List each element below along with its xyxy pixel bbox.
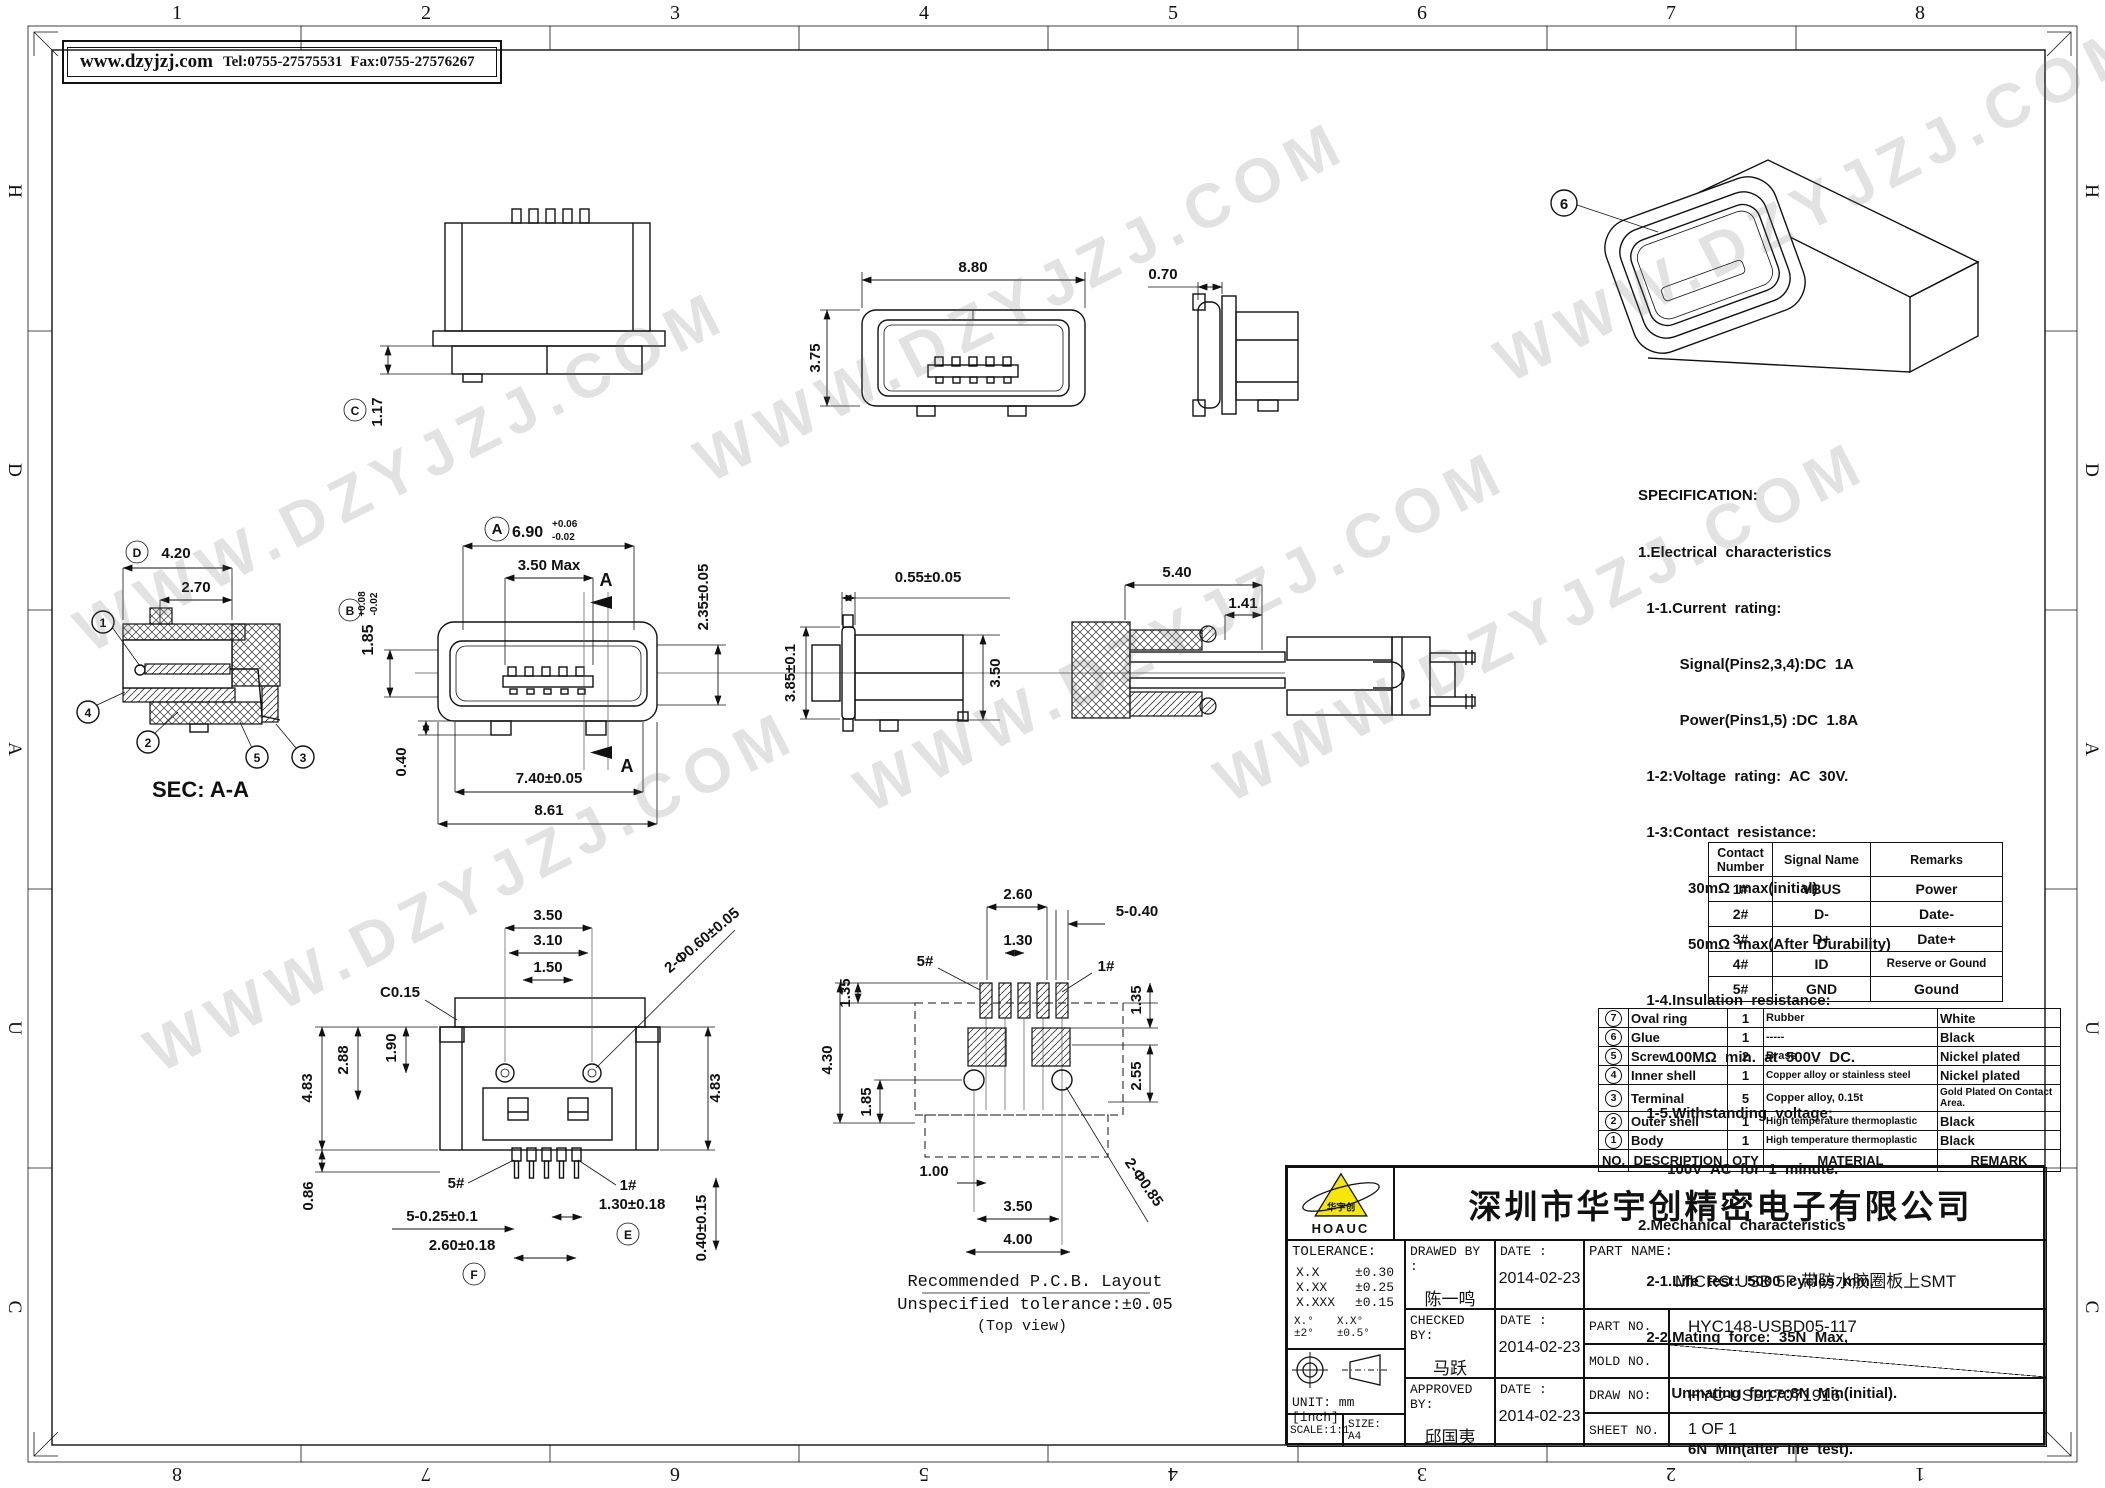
- date2-value: 2014-02-23: [1496, 1339, 1583, 1357]
- dim-0-40-015: 0.40±0.15: [693, 1195, 710, 1262]
- dim-3-50-bot: 3.50: [533, 907, 562, 924]
- zone-row-left-1: H: [3, 179, 25, 203]
- pcb-dim-1-85: 1.85: [858, 1087, 875, 1116]
- zone-col-bottom-3: 3: [1404, 1462, 1440, 1485]
- dim-3-50-max: 3.50 Max: [518, 557, 581, 574]
- spec-line: Power(Pins1,5) :DC 1.8A: [1638, 712, 2050, 731]
- dim-1-30-018: 1.30±0.18: [599, 1196, 666, 1213]
- ref-5-screw: 5: [254, 751, 261, 765]
- dim-1-17: 1.17: [369, 397, 386, 426]
- part-name-cell: PART NAME: MICRO USB 5P 带防水胶圈板上SMT: [1584, 1240, 2047, 1309]
- bom-no-2: 2: [1605, 1113, 1622, 1130]
- dim-5-0-25: 5-0.25±0.1: [406, 1208, 478, 1225]
- pcb-dim-1-30: 1.30: [1003, 932, 1032, 949]
- zone-col-1: 1: [159, 2, 195, 25]
- draw-no-label-cell: DRAW NO:: [1584, 1378, 1669, 1413]
- pcb-dim-4-30: 4.30: [819, 1045, 836, 1074]
- date3-cell: DATE : 2014-02-23: [1495, 1378, 1584, 1447]
- drawed-by-cell: DRAWED BY : 陈一鸣: [1405, 1240, 1495, 1309]
- drawed-name: 陈一鸣: [1406, 1285, 1494, 1310]
- dim-2-60-018: 2.60±0.18: [429, 1237, 496, 1254]
- zone-col-bottom-8: 8: [159, 1462, 195, 1485]
- contact-signal-table: ContactNumber Signal Name Remarks 1#VBUS…: [1708, 842, 1987, 1002]
- bom-no-3: 3: [1605, 1090, 1622, 1107]
- bom-row: 4Inner shell1Copper alloy or stainless s…: [1599, 1066, 2061, 1085]
- spec-line: 1.Electrical characteristics: [1638, 544, 2050, 563]
- pcb-dim-3-50: 3.50: [1003, 1198, 1032, 1215]
- checked-by-cell: CHECKED BY: 马跃: [1405, 1309, 1495, 1378]
- zone-col-4: 4: [906, 2, 942, 25]
- spec-line: 1-3:Contact resistance:: [1638, 824, 2050, 843]
- pcb-caption-tolerance: Unspecified tolerance:±0.05: [897, 1296, 1172, 1315]
- pin-1-label: 1#: [620, 1177, 637, 1194]
- pcb-dim-4-00: 4.00: [1003, 1231, 1032, 1248]
- pcb-dim-1-35-right: 1.35: [1128, 985, 1145, 1014]
- sheet-no-value-cell: 1 OF 1: [1669, 1413, 2047, 1447]
- zone-row-right-4: U: [2080, 1016, 2102, 1040]
- bom-no-7: 7: [1605, 1010, 1622, 1027]
- bom-row: 3Terminal5Copper alloy, 0.15tGold Plated…: [1599, 1085, 2061, 1112]
- pcb-dim-2-55: 2.55: [1128, 1061, 1145, 1090]
- view-side-top: 0.70: [1148, 266, 1298, 416]
- dim-3-75: 3.75: [807, 343, 824, 372]
- pcb-dim-2-holes: 2-Φ0.85: [1121, 1155, 1166, 1210]
- tolerance-cell: TOLERANCE: X.X±0.30 X.XX±0.25 X.XXX±0.15…: [1287, 1240, 1405, 1349]
- checked-name: 马跃: [1406, 1354, 1494, 1379]
- date3-value: 2014-02-23: [1496, 1408, 1583, 1426]
- header-contact-box: www.dzyjzj.com Tel:0755-27575531 Fax:075…: [62, 40, 502, 84]
- zone-col-bottom-5: 5: [906, 1462, 942, 1485]
- datum-a-label: A: [492, 521, 503, 538]
- sheet-no-label-cell: SHEET NO.: [1584, 1413, 1669, 1447]
- dim-4-83-right: 4.83: [707, 1073, 724, 1102]
- website-text: www.dzyjzj.com: [80, 51, 213, 73]
- company-logo: 华宇创 HOAUC: [1287, 1167, 1394, 1240]
- dim-3-50-side: 3.50: [987, 658, 1004, 687]
- view-bottom: 3.50 3.10 1.50 C0.15 2-Φ0.60±0.05 4.83 2…: [299, 904, 743, 1285]
- dim-1-85-tol-up: +0.08: [357, 591, 368, 617]
- part-name-value: MICRO USB 5P 带防水胶圈板上SMT: [1585, 1267, 2046, 1292]
- zone-row-left-3: A: [3, 737, 25, 761]
- view-isometric: 6: [1551, 160, 1978, 372]
- spec-line: Signal(Pins2,3,4):DC 1A: [1638, 656, 2050, 675]
- bom-row: 1Body1High temperature thermoplasticBlac…: [1599, 1131, 2061, 1150]
- contact-header-1a: Contact: [1711, 846, 1770, 860]
- part-no-label-cell: PART NO.: [1584, 1309, 1669, 1344]
- datum-b-label: B: [346, 604, 355, 618]
- zone-row-right-1: H: [2080, 179, 2102, 203]
- zone-row-right-5: C: [2080, 1295, 2102, 1319]
- approved-name: 邱国夷: [1406, 1423, 1494, 1448]
- spec-line: 1-2:Voltage rating: AC 30V.: [1638, 768, 2050, 787]
- zone-col-bottom-4: 4: [1155, 1462, 1191, 1485]
- dim-4-83-left: 4.83: [299, 1073, 316, 1102]
- zone-row-left-5: C: [3, 1295, 25, 1319]
- bom-row: 6Glue1-----Black: [1599, 1028, 2061, 1047]
- dim-8-80: 8.80: [958, 259, 987, 276]
- view-main-front: A 6.90 +0.06 -0.02 3.50 Max A A 2.35±0.0…: [393, 517, 1285, 824]
- bom-no-4: 4: [1605, 1067, 1622, 1084]
- zone-row-right-3: A: [2080, 737, 2102, 761]
- contact-header-1b: Number: [1711, 860, 1770, 874]
- bom-row: 5Screw2BrassNickel plated: [1599, 1047, 2061, 1066]
- mold-no-empty-cell: [1669, 1344, 2047, 1378]
- logo-brand-text: HOAUC: [1312, 1221, 1370, 1236]
- date1-value: 2014-02-23: [1496, 1270, 1583, 1288]
- ref-1-body: 1: [100, 616, 107, 630]
- third-angle-projection-icon: [1288, 1350, 1400, 1390]
- contact-header-remarks: Remarks: [1871, 843, 2003, 877]
- dim-c0-15: C0.15: [380, 984, 420, 1001]
- ref-4-inner-shell: 4: [85, 706, 92, 720]
- contact-row: 2#D-Date-: [1709, 902, 2003, 927]
- mold-no-label-cell: MOLD NO.: [1584, 1344, 1669, 1378]
- dim-2-holes: 2-Φ0.60±0.05: [661, 904, 743, 976]
- section-title: SEC: A-A: [152, 777, 249, 802]
- pcb-pin1-label: 1#: [1098, 958, 1115, 975]
- engineering-drawing-page: C 1.17 8.80 3.75: [0, 0, 2105, 1488]
- dim-0-86: 0.86: [300, 1181, 317, 1210]
- dim-1-41: 1.41: [1228, 595, 1257, 612]
- logo-mark-icon: 华宇创: [1298, 1171, 1384, 1223]
- zone-col-2: 2: [408, 2, 444, 25]
- zone-row-left-4: U: [3, 1016, 25, 1040]
- draw-no-value: HYC-USB17071916: [1670, 1386, 1840, 1406]
- scale-cell: SCALE:1:1: [1287, 1414, 1343, 1447]
- dim-6-90-tol-dn: -0.02: [552, 532, 575, 543]
- zone-col-7: 7: [1653, 2, 1689, 25]
- view-top: C 1.17: [344, 209, 665, 427]
- date2-cell: DATE : 2014-02-23: [1495, 1309, 1584, 1378]
- size-cell: SIZE: A4: [1343, 1414, 1405, 1447]
- dim-5-40: 5.40: [1162, 564, 1191, 581]
- zone-col-5: 5: [1155, 2, 1191, 25]
- dim-1-85-tol-dn: -0.02: [369, 592, 380, 615]
- tel-text: Tel:0755-27575531: [223, 54, 342, 71]
- sheet-no-value: 1 OF 1: [1670, 1421, 1737, 1439]
- bom-row: 2Outer shell1High temperature thermoplas…: [1599, 1112, 2061, 1131]
- contact-row: 3#D+Date+: [1709, 927, 2003, 952]
- approved-by-cell: APPROVED BY: 邱国夷: [1405, 1378, 1495, 1447]
- view-pcb-layout: 2.60 5-0.40 1.30 5# 1# 1.35 4.30 1.85 1.…: [819, 886, 1173, 1335]
- dim-1-50: 1.50: [533, 959, 562, 976]
- pcb-dim-5-0-40: 5-0.40: [1116, 903, 1159, 920]
- contact-row: 4#IDReserve or Gound: [1709, 952, 2003, 977]
- dim-1-85: 1.85: [360, 624, 377, 655]
- pcb-pin5-label: 5#: [917, 953, 934, 970]
- datum-e-label: E: [624, 1228, 632, 1242]
- dim-1-90: 1.90: [383, 1033, 400, 1062]
- zone-row-right-2: D: [2080, 458, 2102, 482]
- pcb-dim-1-00: 1.00: [919, 1163, 948, 1180]
- date1-cell: DATE : 2014-02-23: [1495, 1240, 1584, 1309]
- contact-row: 5#GNDGound: [1709, 977, 2003, 1002]
- dim-6-90: 6.90: [512, 524, 543, 541]
- zone-col-8: 8: [1902, 2, 1938, 25]
- ref-3-terminal: 3: [300, 751, 307, 765]
- pcb-caption-topview: (Top view): [977, 1318, 1067, 1335]
- dim-6-90-tol-up: +0.06: [552, 519, 578, 530]
- projection-unit-cell: UNIT: mm [inch]: [1287, 1349, 1405, 1414]
- zone-col-bottom-6: 6: [657, 1462, 693, 1485]
- dim-7-40: 7.40±0.05: [516, 770, 583, 787]
- fax-text: Fax:0755-27576267: [350, 54, 474, 71]
- logo-cjk-text: 华宇创: [1326, 1202, 1354, 1214]
- bom-no-1: 1: [1605, 1132, 1622, 1149]
- spec-line: SPECIFICATION:: [1638, 487, 2050, 506]
- section-letter-bottom: A: [621, 756, 634, 776]
- dim-0-55: 0.55±0.05: [895, 569, 962, 586]
- bom-row: 7 Oval ring 1 Rubber White: [1599, 1009, 2061, 1028]
- tolerance-title: TOLERANCE:: [1288, 1241, 1404, 1263]
- zone-col-3: 3: [657, 2, 693, 25]
- ref-6-glue: 6: [1560, 196, 1568, 213]
- section-letter-top: A: [600, 570, 613, 590]
- draw-no-value-cell: HYC-USB17071916: [1669, 1378, 2047, 1413]
- dim-0-40: 0.40: [393, 747, 410, 776]
- part-no-value: HYC148-USBD05-117: [1670, 1317, 1857, 1337]
- zone-col-6: 6: [1404, 2, 1440, 25]
- zone-col-bottom-7: 7: [408, 1462, 444, 1485]
- dim-2-35: 2.35±0.05: [695, 564, 712, 631]
- title-block: 华宇创 HOAUC 深圳市华宇创精密电子有限公司 TOLERANCE: X.X±…: [1285, 1165, 2045, 1445]
- datum-c-label: C: [351, 404, 360, 418]
- dim-3-85: 3.85±0.1: [782, 644, 799, 702]
- view-side-mid: 0.55±0.05 3.85±0.1 3.50: [782, 569, 1010, 731]
- bom-no-6: 6: [1605, 1029, 1622, 1046]
- dim-3-10: 3.10: [533, 932, 562, 949]
- pcb-caption-title: Recommended P.C.B. Layout: [907, 1273, 1162, 1292]
- part-no-value-cell: HYC148-USBD05-117: [1669, 1309, 2047, 1344]
- dim-0-70: 0.70: [1148, 266, 1177, 283]
- bom-no-5: 5: [1605, 1048, 1622, 1065]
- spec-line: 1-1.Current rating:: [1638, 600, 2050, 619]
- company-name: 深圳市华宇创精密电子有限公司: [1394, 1167, 2047, 1240]
- view-mated-section: 5.40 1.41: [1072, 564, 1475, 718]
- datum-d-label: D: [133, 546, 142, 560]
- view-front-face: 8.80 3.75: [807, 259, 1085, 416]
- pin-5-label: 5#: [448, 1175, 465, 1192]
- contact-header-row: ContactNumber Signal Name Remarks: [1709, 843, 2003, 877]
- dim-2-88: 2.88: [335, 1045, 352, 1074]
- dim-4-20: 4.20: [161, 545, 190, 562]
- bom-table: 7 Oval ring 1 Rubber White 6Glue1-----Bl…: [1598, 1008, 2045, 1172]
- dim-8-61: 8.61: [534, 802, 563, 819]
- contact-header-signal: Signal Name: [1773, 843, 1871, 877]
- contact-row: 1#VBUSPower: [1709, 877, 2003, 902]
- datum-f-label: F: [470, 1268, 477, 1282]
- zone-row-left-2: D: [3, 458, 25, 482]
- ref-2-outer-shell: 2: [145, 736, 152, 750]
- pcb-dim-2-60: 2.60: [1003, 886, 1032, 903]
- dim-2-70: 2.70: [181, 579, 210, 596]
